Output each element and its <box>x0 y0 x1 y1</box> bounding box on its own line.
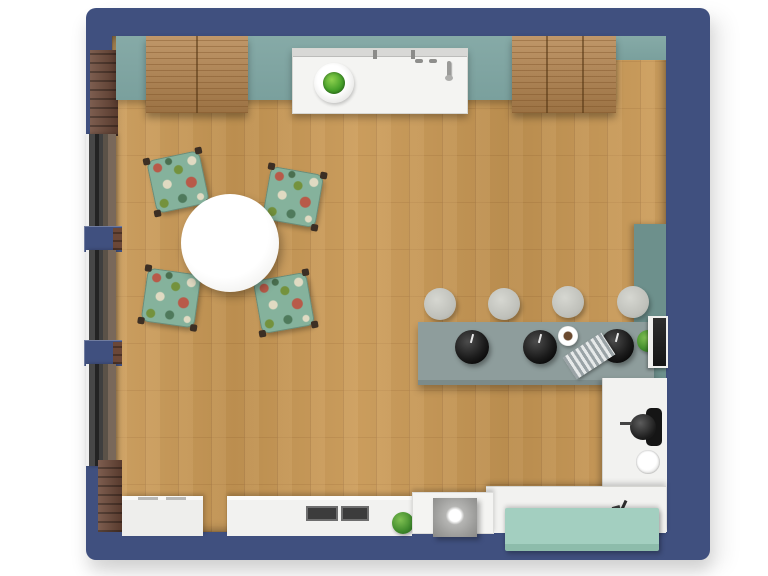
chair-leg <box>267 162 275 170</box>
island-appliance-cube[interactable] <box>433 498 477 537</box>
counter-back-rail <box>293 49 467 57</box>
chair-leg <box>258 330 266 338</box>
pendant-light-2[interactable] <box>523 330 557 364</box>
pendant-highlight <box>470 334 474 343</box>
pendant-highlight <box>615 333 619 342</box>
coffee-machine-arm <box>620 422 632 425</box>
laptop[interactable] <box>648 316 668 368</box>
cabinet-handle <box>166 497 186 500</box>
coffee-machine-head <box>630 414 656 440</box>
window-2[interactable] <box>86 250 116 354</box>
brick-pier-top <box>90 50 118 136</box>
mint-sideboard[interactable] <box>505 508 659 551</box>
chair-leg <box>311 320 319 328</box>
round-sink[interactable] <box>636 450 660 474</box>
cooktop-zone-1 <box>306 506 338 521</box>
counter-knob <box>415 59 423 63</box>
chair-leg <box>190 324 198 332</box>
bar-stool-4[interactable] <box>617 286 649 318</box>
wall-pillar-1 <box>84 226 122 252</box>
cooktop-zone-2 <box>341 506 369 521</box>
chair-leg <box>153 209 161 217</box>
herb-bowl[interactable] <box>314 63 354 103</box>
floorplan-scene <box>0 0 768 576</box>
window-1[interactable] <box>86 134 116 240</box>
rail-notch <box>411 50 415 59</box>
chair-leg <box>310 224 318 232</box>
bar-stool-1[interactable] <box>424 288 456 320</box>
pendant-highlight <box>538 334 542 343</box>
chair-leg <box>137 317 145 325</box>
coffee-machine[interactable] <box>626 406 664 448</box>
window-3[interactable] <box>86 364 116 466</box>
bottom-counter[interactable] <box>227 496 412 536</box>
bottom-plant[interactable] <box>392 512 414 534</box>
teal-countertop-right-strip <box>616 36 666 60</box>
upper-cabinet-right[interactable] <box>512 36 616 113</box>
bar-stool-2[interactable] <box>488 288 520 320</box>
wall-pillar-2 <box>84 340 122 366</box>
chair-leg <box>301 268 309 276</box>
upper-cabinet-left[interactable] <box>146 36 248 113</box>
brick-edge <box>113 228 122 250</box>
cabinet-divider <box>546 36 548 113</box>
chair-leg <box>142 157 150 165</box>
kitchen-counter-top[interactable] <box>292 48 468 114</box>
cabinet-handle <box>138 497 158 500</box>
counter-knob <box>429 59 437 63</box>
dining-chair-3[interactable] <box>141 268 202 329</box>
cabinet-divider <box>582 36 584 113</box>
pendant-light-1[interactable] <box>455 330 489 364</box>
brick-edge <box>113 342 122 364</box>
rail-notch <box>373 50 377 59</box>
brick-pier-bottom <box>98 460 122 532</box>
herbs-icon <box>323 72 345 94</box>
cabinet-divider <box>196 36 198 113</box>
dining-table[interactable] <box>181 194 279 292</box>
dining-chair-4[interactable] <box>253 272 316 335</box>
chair-leg <box>320 171 328 179</box>
laptop-screen <box>653 318 666 366</box>
faucet-base <box>445 75 453 81</box>
coffee-cup[interactable] <box>558 326 578 346</box>
white-cabinet-bottom-left[interactable] <box>122 496 203 536</box>
chair-leg <box>144 264 152 272</box>
bar-stool-3[interactable] <box>552 286 584 318</box>
